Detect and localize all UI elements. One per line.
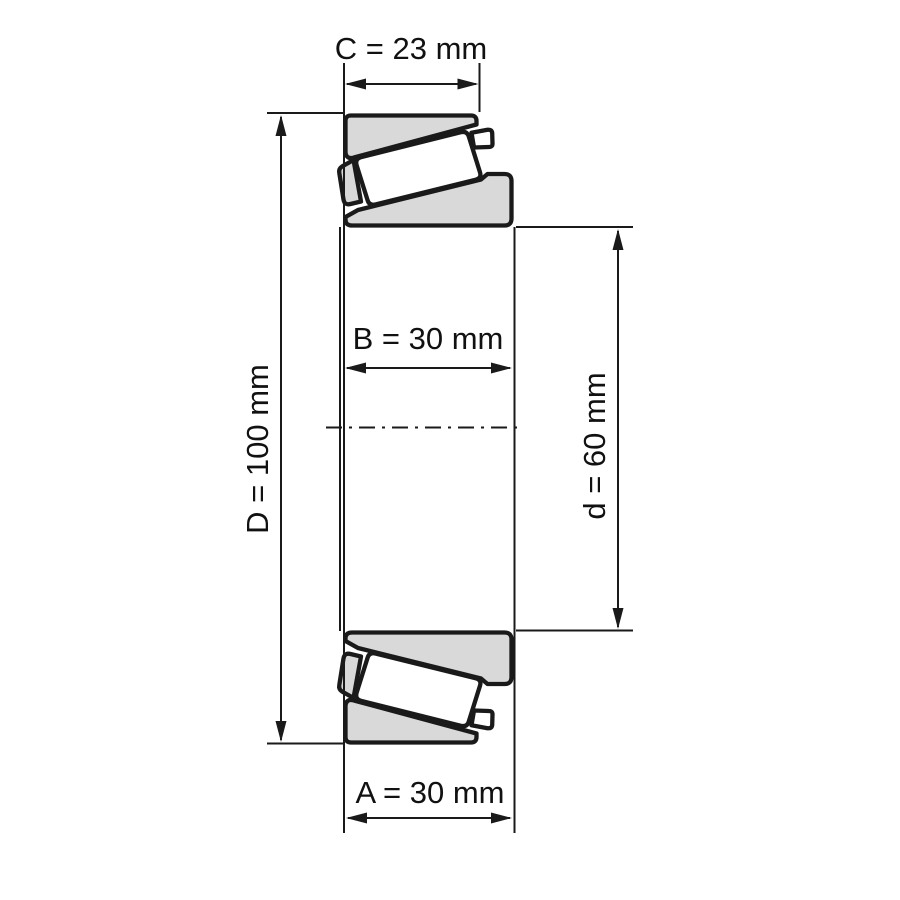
dimension-label-B: B = 30 mm — [353, 321, 504, 356]
arrowhead-A-right — [491, 813, 512, 824]
arrowhead-D-bottom — [276, 721, 287, 742]
arrowhead-A-left — [346, 813, 367, 824]
arrowhead-C-left — [345, 79, 366, 90]
arrowhead-B-left — [345, 363, 366, 374]
bearing-diagram-canvas: C = 23 mm D = 100 mm B = 30 mm d = 60 mm — [0, 0, 900, 900]
dimension-C: C = 23 mm — [335, 31, 487, 90]
dimension-label-C: C = 23 mm — [335, 31, 487, 66]
dimension-label-D: D = 100 mm — [240, 364, 275, 534]
bearing-cross-section — [339, 116, 511, 743]
arrowhead-d-bottom — [613, 608, 624, 629]
dimension-A: A = 30 mm — [346, 775, 512, 824]
dimension-d: d = 60 mm — [577, 229, 624, 629]
bearing-half-top — [339, 116, 511, 226]
dimension-B: B = 30 mm — [345, 321, 512, 374]
bearing-dimension-diagram: C = 23 mm D = 100 mm B = 30 mm d = 60 mm — [0, 0, 900, 900]
arrowhead-B-right — [491, 363, 512, 374]
arrowhead-d-top — [613, 229, 624, 250]
dimension-label-A: A = 30 mm — [355, 775, 504, 810]
bearing-half-bottom — [339, 633, 511, 743]
dimension-label-d: d = 60 mm — [577, 372, 612, 519]
cage-big-end — [472, 130, 493, 148]
arrowhead-C-right — [458, 79, 479, 90]
dimension-D: D = 100 mm — [240, 115, 287, 742]
arrowhead-D-top — [276, 115, 287, 136]
